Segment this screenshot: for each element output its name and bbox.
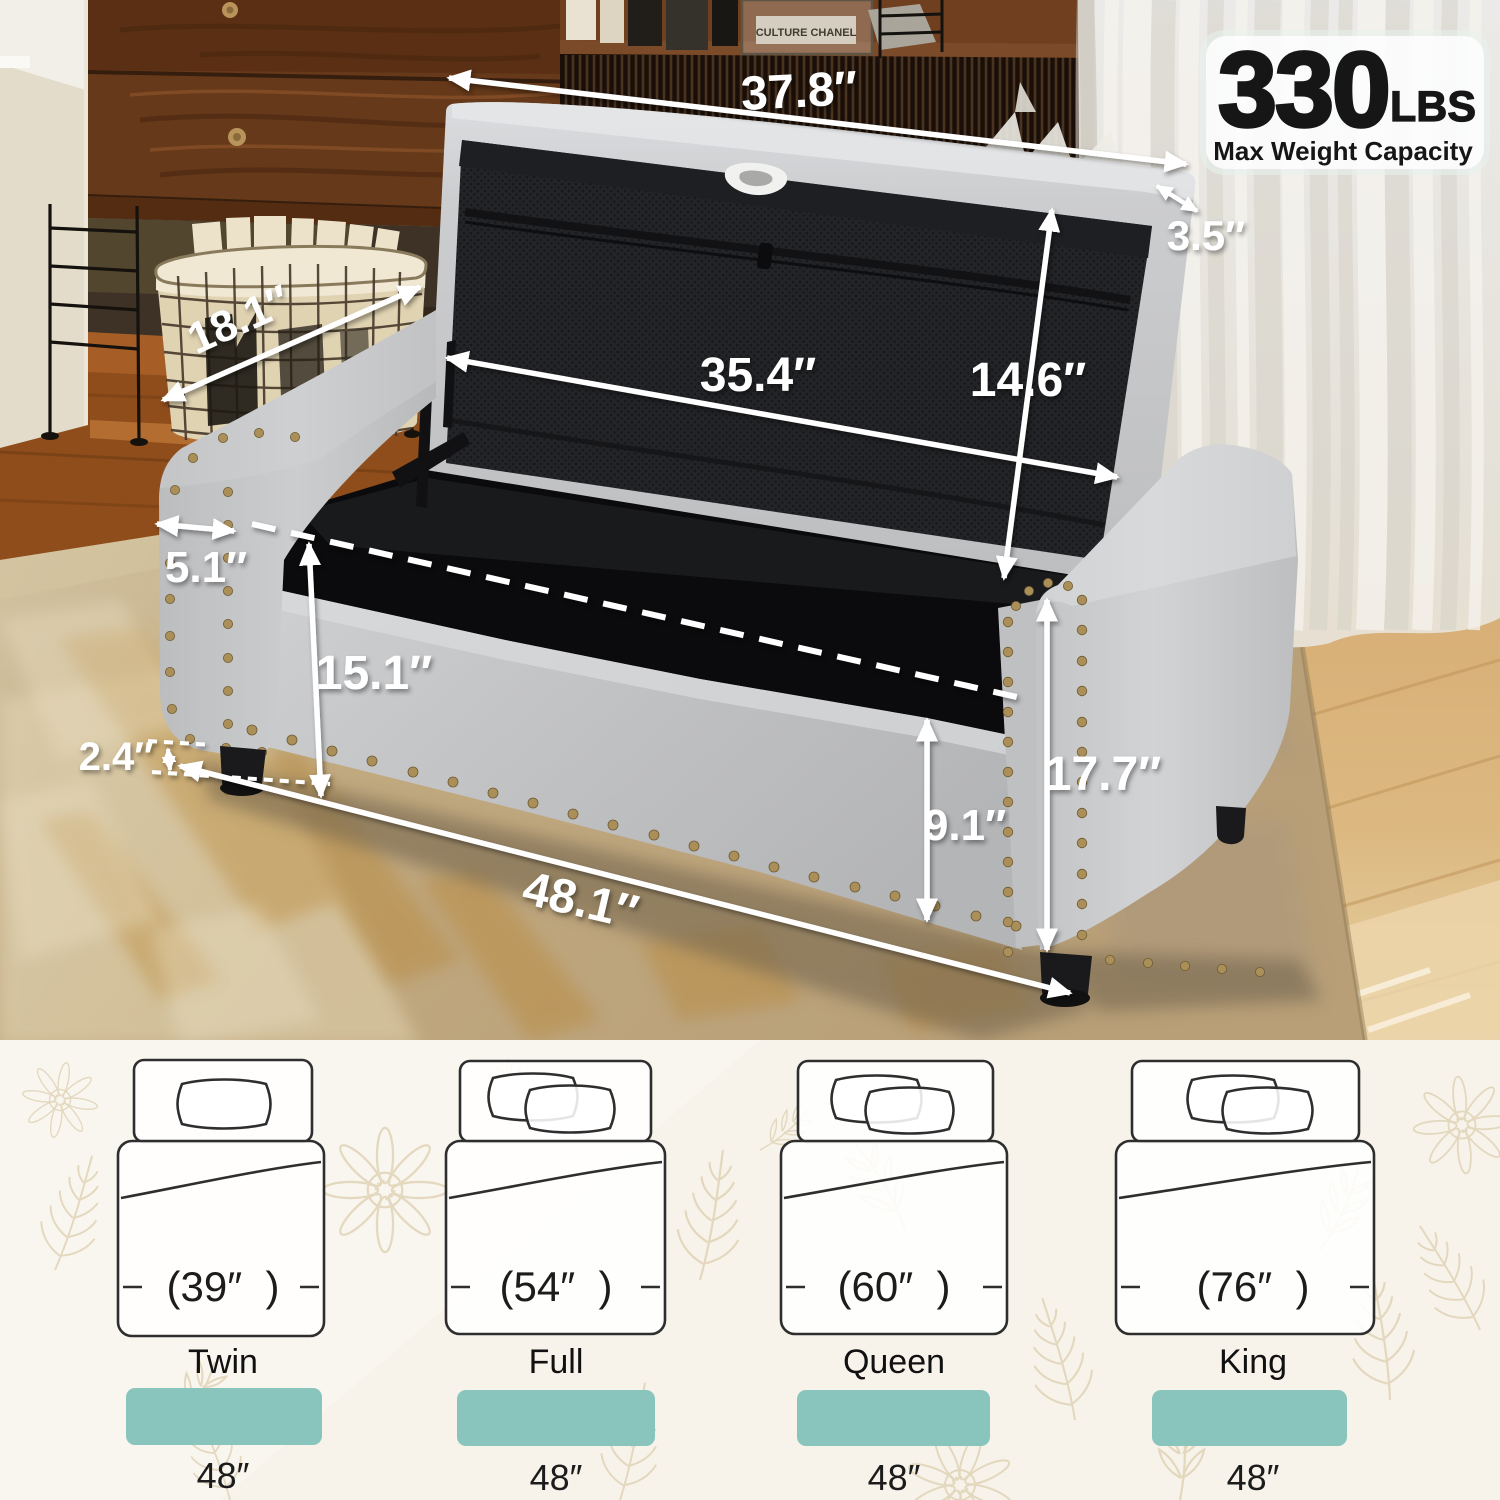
- svg-text:Full: Full: [529, 1343, 584, 1381]
- svg-text:48″: 48″: [1227, 1457, 1280, 1498]
- svg-text:CULTURE CHANEL: CULTURE CHANEL: [756, 27, 857, 39]
- svg-text:(76″ ): (76″ ): [1197, 1263, 1310, 1310]
- svg-text:(39″ ): (39″ ): [167, 1263, 280, 1310]
- svg-text:48″: 48″: [868, 1457, 921, 1498]
- svg-text:48″: 48″: [197, 1455, 250, 1496]
- svg-text:Queen: Queen: [843, 1343, 945, 1381]
- svg-text:2.4″: 2.4″: [79, 735, 154, 779]
- svg-text:37.8″: 37.8″: [740, 62, 859, 121]
- svg-text:5.1″: 5.1″: [165, 543, 247, 592]
- svg-text:9.1″: 9.1″: [924, 801, 1006, 850]
- svg-text:17.7″: 17.7″: [1045, 748, 1161, 801]
- svg-text:(54″ ): (54″ ): [500, 1263, 613, 1310]
- svg-text:35.4″: 35.4″: [700, 349, 816, 402]
- svg-text:14.6″: 14.6″: [970, 354, 1086, 407]
- svg-text:330: 330: [1218, 31, 1389, 149]
- svg-text:Twin: Twin: [188, 1343, 258, 1381]
- svg-text:King: King: [1219, 1343, 1287, 1381]
- svg-text:Max Weight Capacity: Max Weight Capacity: [1213, 136, 1473, 166]
- svg-text:3.5″: 3.5″: [1167, 212, 1246, 259]
- svg-text:48″: 48″: [530, 1457, 583, 1498]
- svg-text:LBS: LBS: [1390, 83, 1476, 131]
- svg-text:(60″ ): (60″ ): [838, 1263, 951, 1310]
- svg-text:15.1″: 15.1″: [316, 647, 432, 700]
